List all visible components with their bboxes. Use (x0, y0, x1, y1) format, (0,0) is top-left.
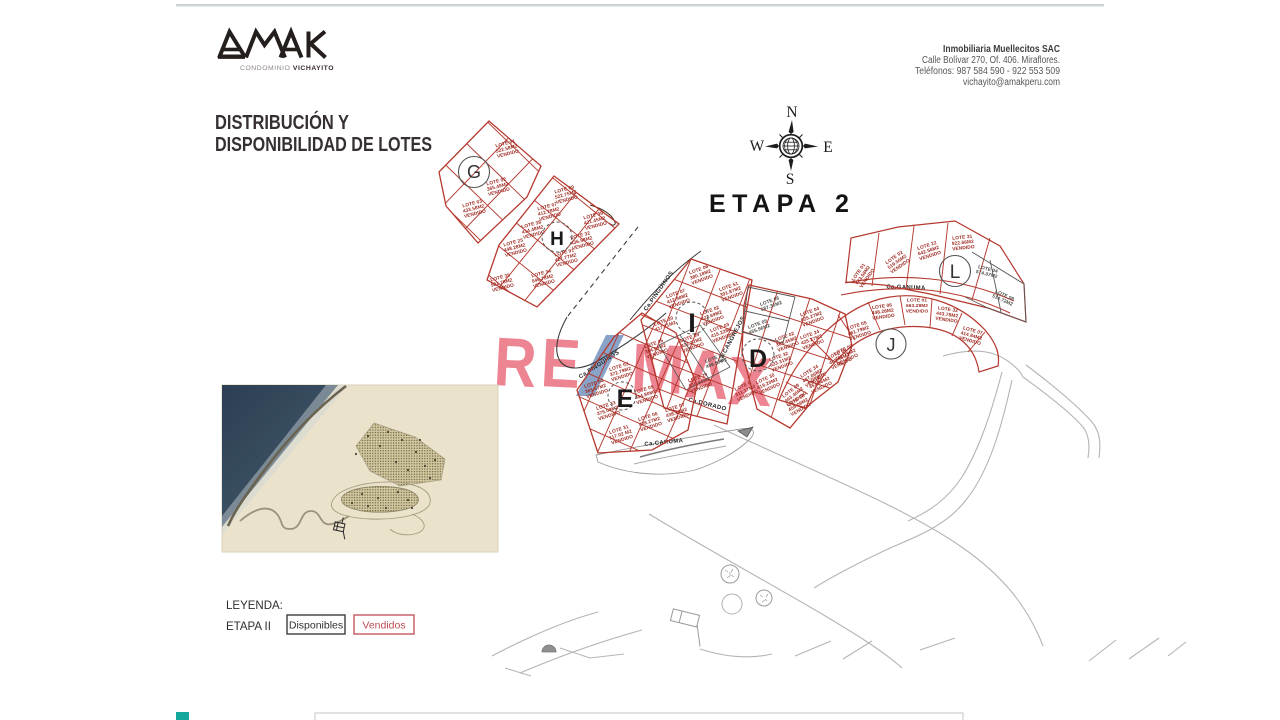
svg-text:D: D (749, 345, 767, 373)
svg-text:DISTRIBUCIÓN Y: DISTRIBUCIÓN Y (215, 110, 350, 134)
svg-text:CONDOMINIO VICHAYITO: CONDOMINIO VICHAYITO (240, 65, 334, 72)
svg-text:ETAPA 2: ETAPA 2 (709, 190, 855, 218)
svg-text:vichayito@amakperu.com: vichayito@amakperu.com (963, 77, 1060, 88)
svg-text:L: L (950, 262, 961, 283)
svg-text:S: S (786, 171, 795, 188)
svg-text:Inmobiliaria Muellecitos SAC: Inmobiliaria Muellecitos SAC (943, 43, 1060, 55)
svg-text:I: I (688, 308, 696, 338)
svg-text:Teléfonos: 987 584 590 - 922 5: Teléfonos: 987 584 590 - 922 553 509 (915, 66, 1060, 77)
svg-text:E: E (823, 139, 832, 156)
svg-text:W: W (750, 138, 765, 155)
svg-text:H: H (550, 229, 564, 250)
svg-text:LOTE 32443.78M2VENDIDO: LOTE 32443.78M2VENDIDO (935, 305, 960, 325)
svg-text:LOTE 06448.28M2VENDIDO: LOTE 06448.28M2VENDIDO (871, 302, 896, 322)
svg-text:DISPONIBILIDAD DE LOTES: DISPONIBILIDAD DE LOTES (215, 134, 432, 156)
svg-text:E: E (617, 385, 634, 413)
svg-text:Disponibles: Disponibles (289, 620, 343, 632)
svg-text:Vendidos: Vendidos (362, 620, 405, 632)
svg-text:ETAPA II: ETAPA II (226, 621, 271, 633)
svg-text:N: N (786, 104, 797, 121)
svg-text:G: G (467, 162, 481, 182)
svg-text:LOTE 31922.66M2VENDIDO: LOTE 31922.66M2VENDIDO (951, 234, 975, 253)
svg-text:E: E (539, 324, 582, 404)
svg-text:Calle Bolívar 270, Of. 406. Mi: Calle Bolívar 270, Of. 406. Miraflores. (922, 55, 1060, 66)
svg-text:R: R (492, 323, 538, 403)
svg-text:LOTE 01663.28M2VENDIDO: LOTE 01663.28M2VENDIDO (906, 298, 929, 315)
svg-text:J: J (887, 335, 896, 355)
svg-text:LEYENDA:: LEYENDA: (226, 600, 283, 612)
